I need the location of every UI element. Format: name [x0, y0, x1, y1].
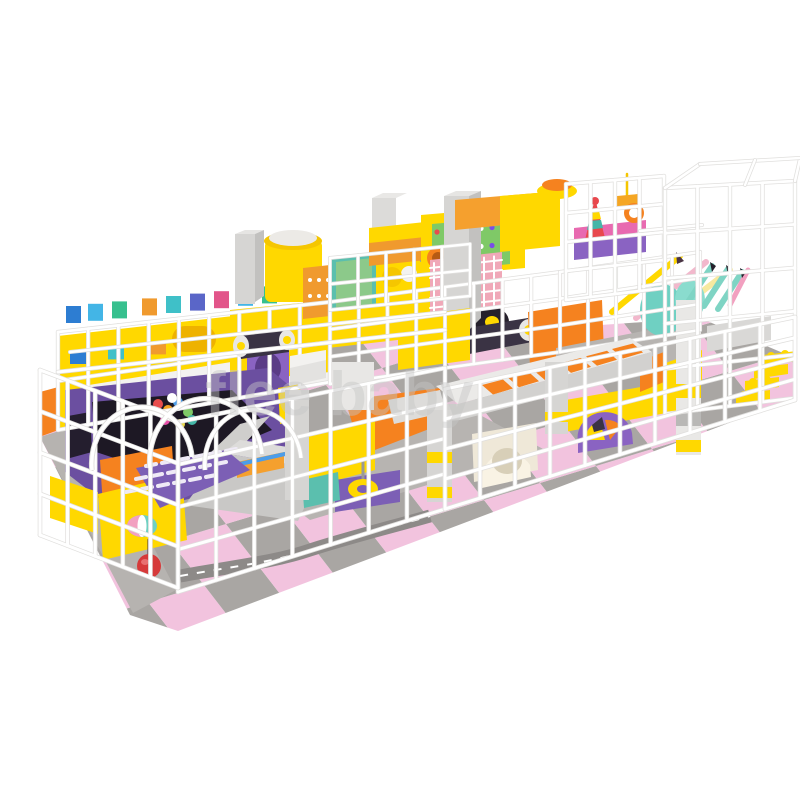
svg-text:flee baby: flee baby [205, 360, 474, 429]
